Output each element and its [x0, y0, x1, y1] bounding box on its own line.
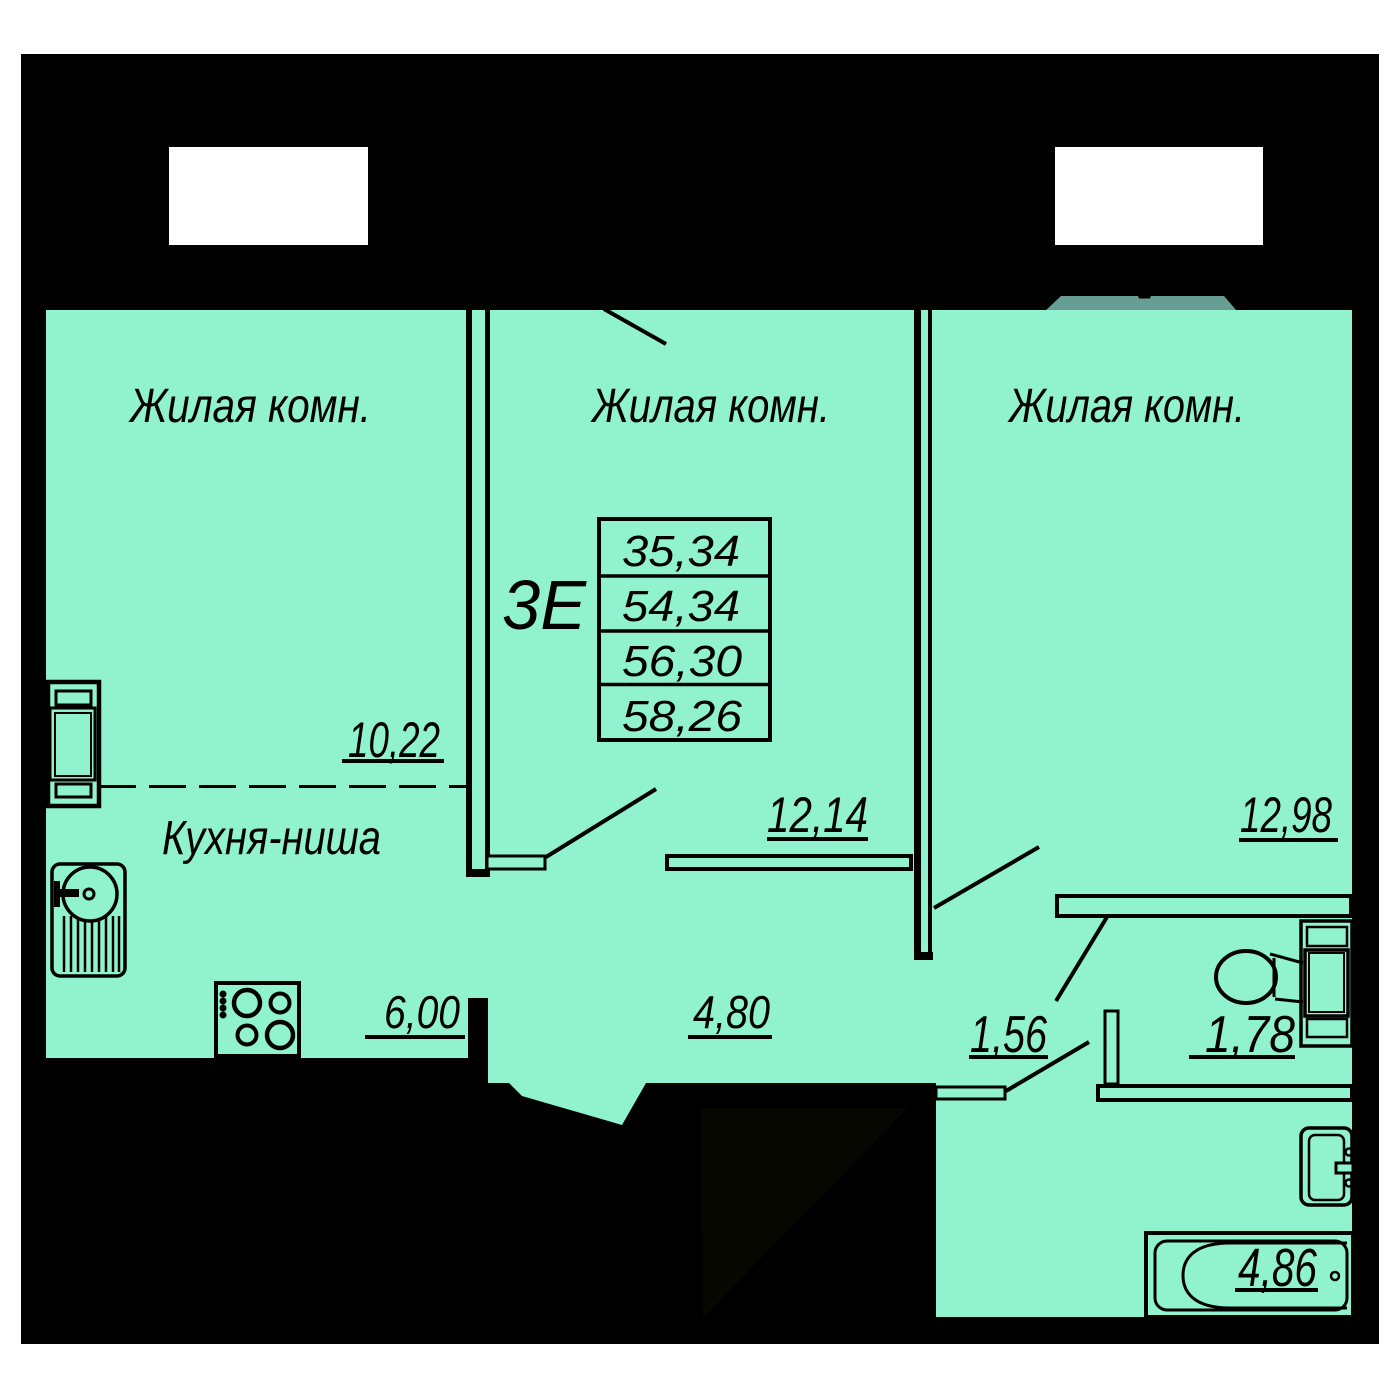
svg-text:1,78: 1,78 [1205, 1006, 1295, 1064]
svg-text:54,34: 54,34 [622, 582, 740, 631]
svg-text:6,00: 6,00 [384, 986, 460, 1038]
svg-text:4,86: 4,86 [1238, 1238, 1318, 1298]
svg-text:4,80: 4,80 [693, 986, 770, 1038]
svg-text:35,34: 35,34 [622, 527, 740, 576]
svg-text:12,14: 12,14 [767, 787, 868, 843]
svg-text:Жилая комн.: Жилая комн. [128, 380, 371, 433]
svg-text:58,26: 58,26 [622, 692, 743, 741]
svg-text:56,30: 56,30 [622, 637, 743, 686]
svg-text:1,56: 1,56 [970, 1006, 1047, 1064]
svg-text:Жилая комн.: Жилая комн. [590, 380, 830, 433]
svg-text:10,22: 10,22 [348, 712, 440, 768]
svg-text:Кухня-ниша: Кухня-ниша [162, 812, 381, 865]
svg-text:Жилая комн.: Жилая комн. [1007, 380, 1245, 433]
svg-text:12,98: 12,98 [1240, 787, 1332, 843]
svg-text:3Е: 3Е [502, 566, 587, 644]
